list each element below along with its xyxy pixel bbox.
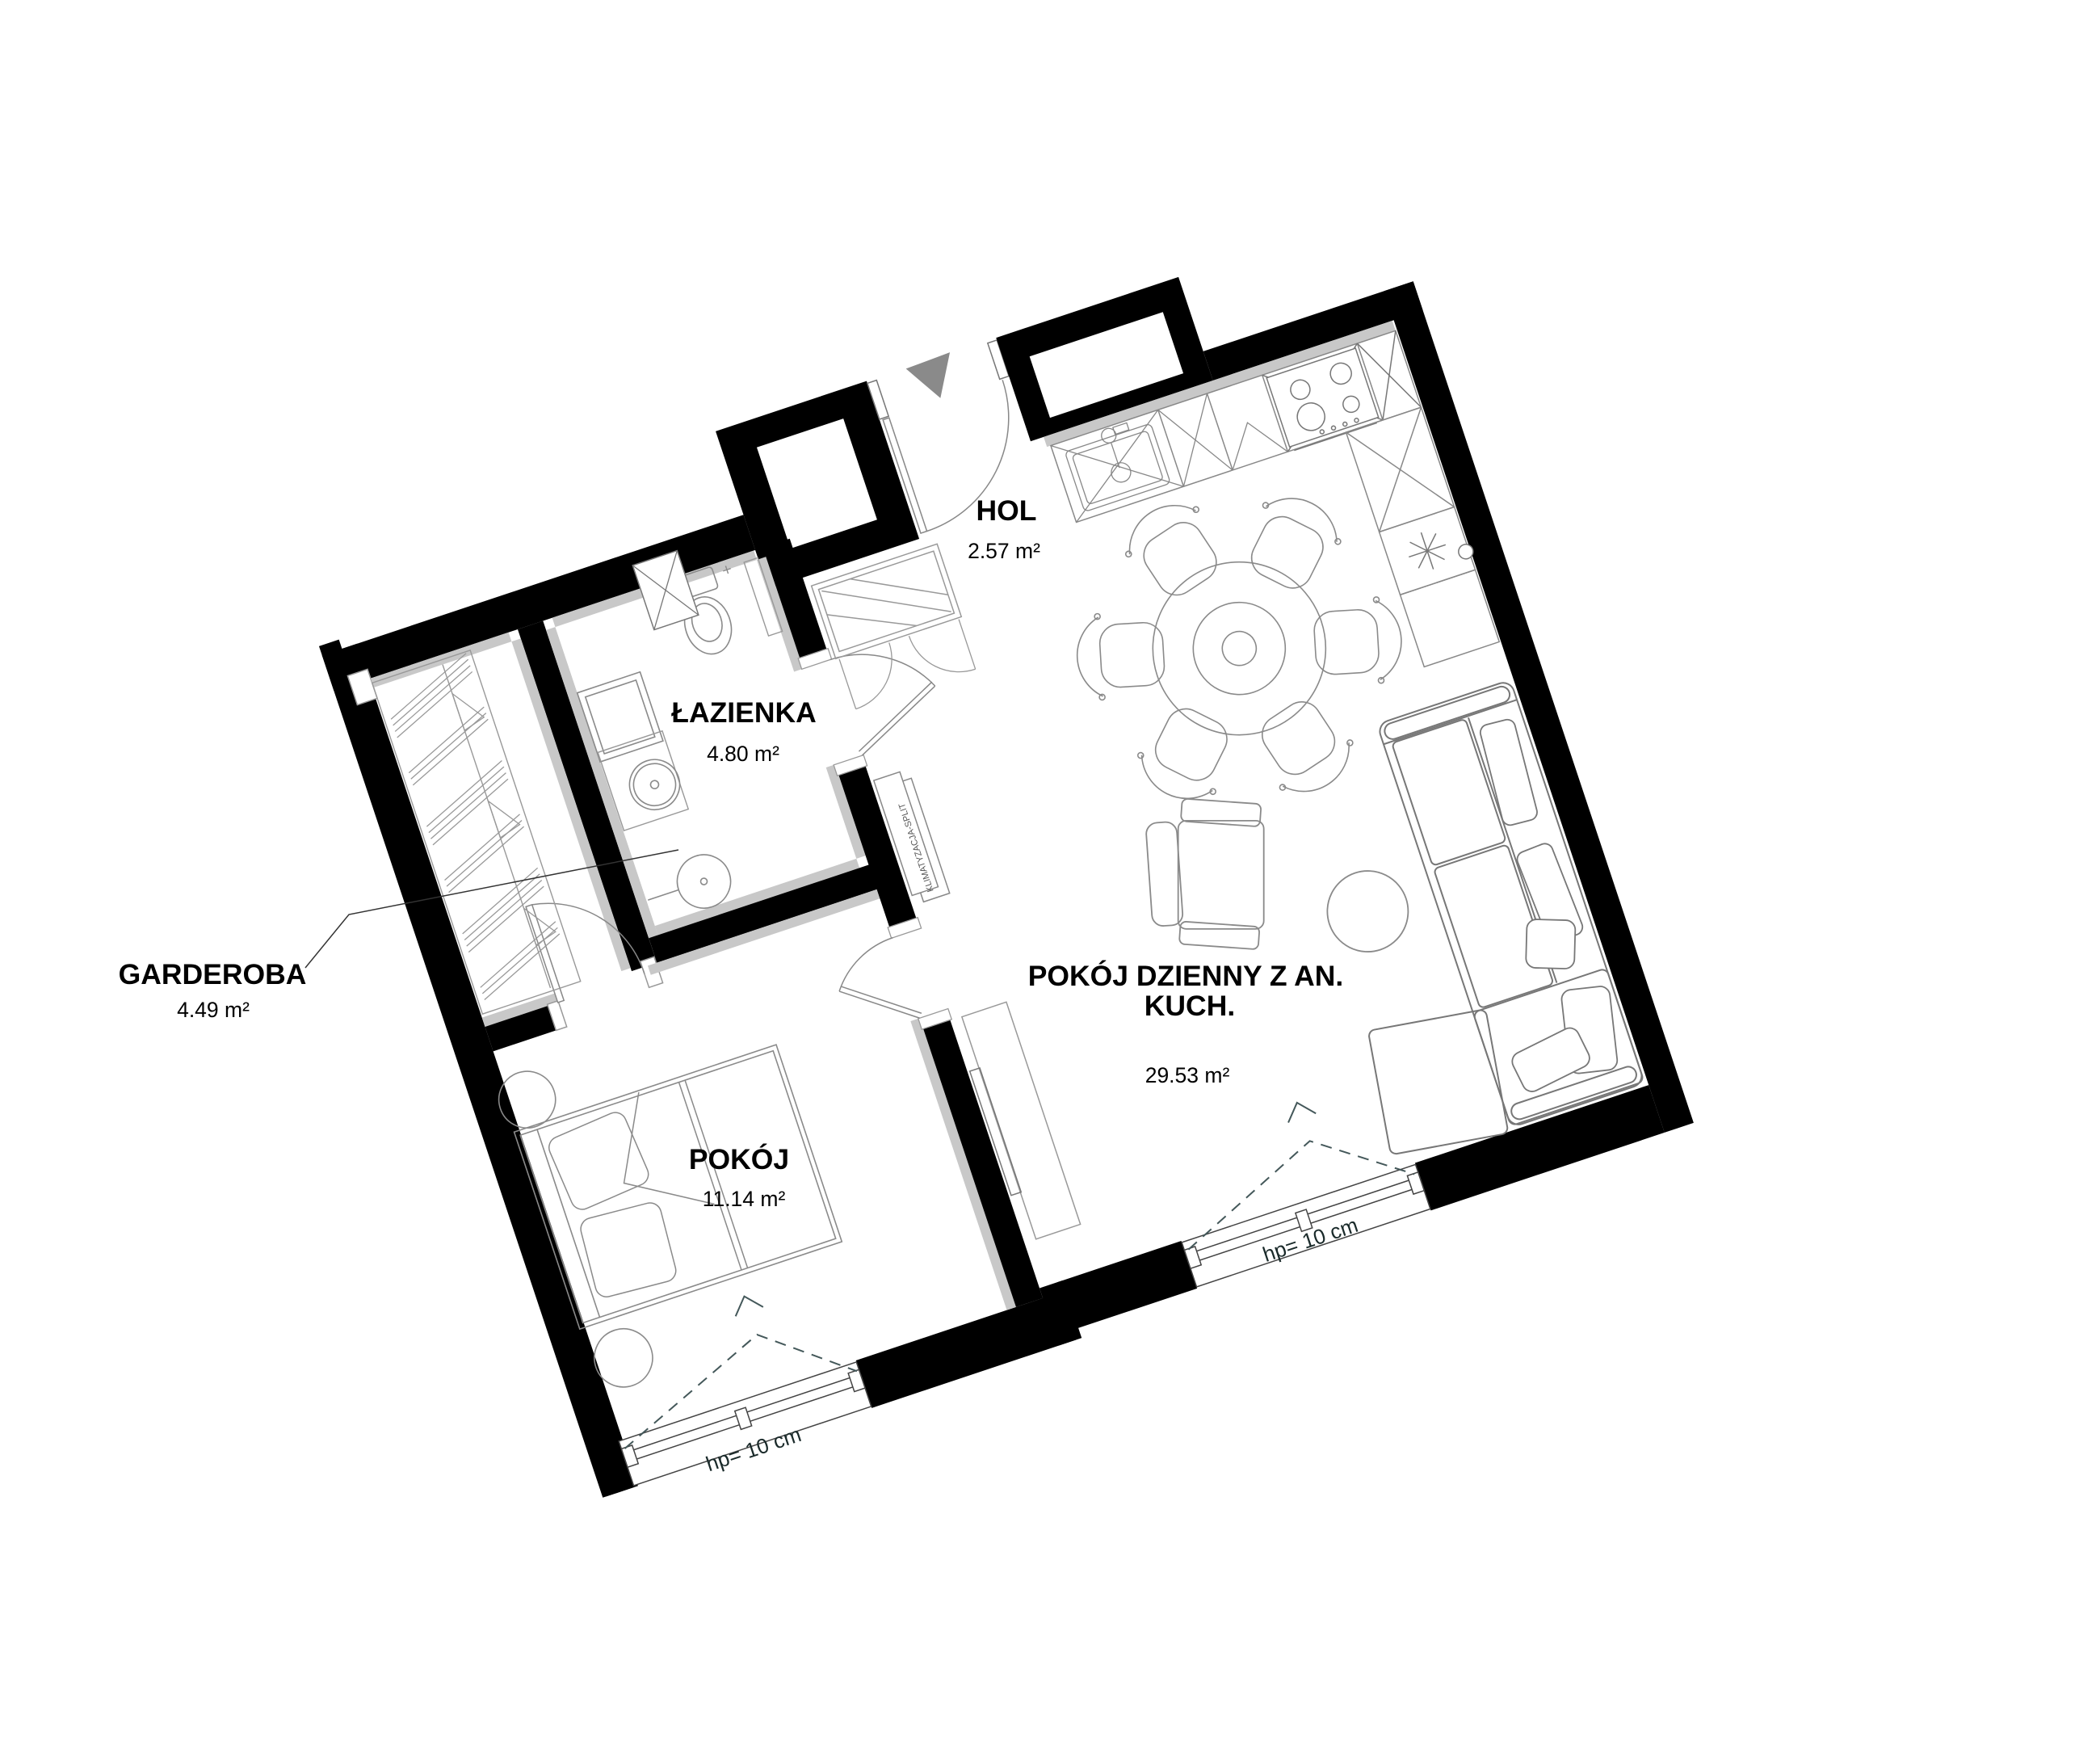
svg-text:HOL: HOL (976, 494, 1037, 527)
svg-text:POKÓJ DZIENNY Z AN.: POKÓJ DZIENNY Z AN. (1028, 960, 1344, 992)
svg-text:29.53 m²: 29.53 m² (1145, 1063, 1230, 1087)
svg-text:ŁAZIENKA: ŁAZIENKA (671, 696, 816, 729)
svg-text:11.14 m²: 11.14 m² (703, 1187, 786, 1211)
svg-text:4.49 m²: 4.49 m² (177, 998, 250, 1022)
svg-text:POKÓJ: POKÓJ (689, 1143, 789, 1175)
svg-text:4.80 m²: 4.80 m² (707, 742, 779, 766)
svg-text:KUCH.: KUCH. (1144, 990, 1235, 1022)
svg-text:GARDEROBA: GARDEROBA (119, 958, 307, 990)
svg-text:2.57 m²: 2.57 m² (968, 539, 1040, 563)
